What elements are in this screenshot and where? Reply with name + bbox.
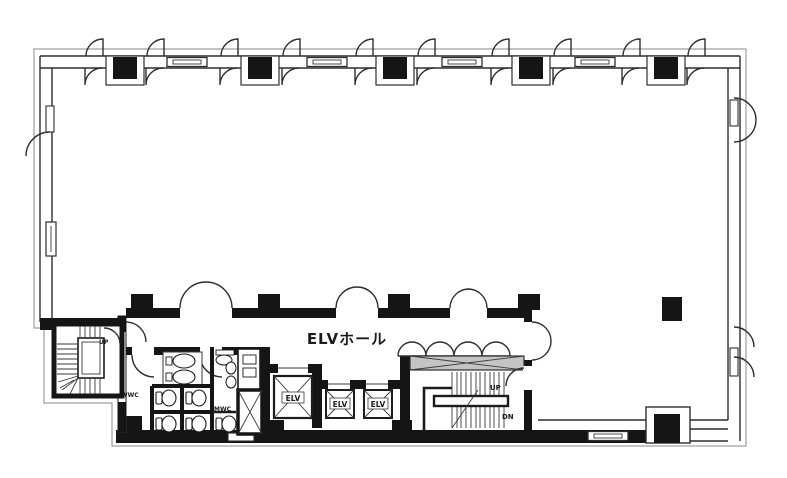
- door-swing: [26, 132, 50, 156]
- elevator-3-label: ELV: [371, 400, 386, 409]
- stairs-right: UP DN: [398, 342, 533, 440]
- floor-plan-drawing: ELVホール: [0, 0, 787, 478]
- elevator-2-label: ELV: [333, 400, 348, 409]
- floor-plan: ELVホール: [0, 0, 787, 478]
- pipe-shaft: [238, 390, 262, 434]
- toilet-block: WWC MWC: [121, 346, 270, 440]
- toilet: [156, 390, 176, 406]
- door-leaf: [46, 106, 54, 132]
- hall-label: ELVホール: [307, 330, 387, 348]
- stairs-down-label: DN: [502, 413, 514, 421]
- door-swing: [126, 322, 146, 342]
- window: [588, 432, 628, 441]
- elevator-2: ELV: [326, 390, 354, 418]
- left-stairs-up-label: UP: [99, 339, 109, 346]
- sink-counter: [163, 352, 202, 385]
- urinal: [226, 376, 236, 388]
- stairs-up-label: UP: [490, 384, 501, 392]
- machine-strip: [410, 356, 524, 370]
- hall-double-doors: [180, 282, 487, 308]
- column: [654, 414, 680, 443]
- hall-east-door: [532, 322, 551, 360]
- toilet: [216, 416, 236, 432]
- door-swing: [506, 368, 524, 386]
- elevator-1-label: ELV: [286, 394, 301, 403]
- toilet: [186, 416, 206, 432]
- landing-wall: [424, 388, 452, 430]
- stairs-left: UP: [40, 318, 126, 396]
- toilet: [156, 416, 176, 432]
- elevator-3: ELV: [364, 390, 392, 418]
- right-wall-openings: [730, 98, 756, 377]
- toilet: [186, 390, 206, 406]
- mens-wc-label: MWC: [214, 406, 232, 413]
- folding-doors: [398, 342, 510, 356]
- urinal: [226, 362, 236, 374]
- free-column: [662, 297, 682, 321]
- elevator-1: ELV: [274, 376, 312, 418]
